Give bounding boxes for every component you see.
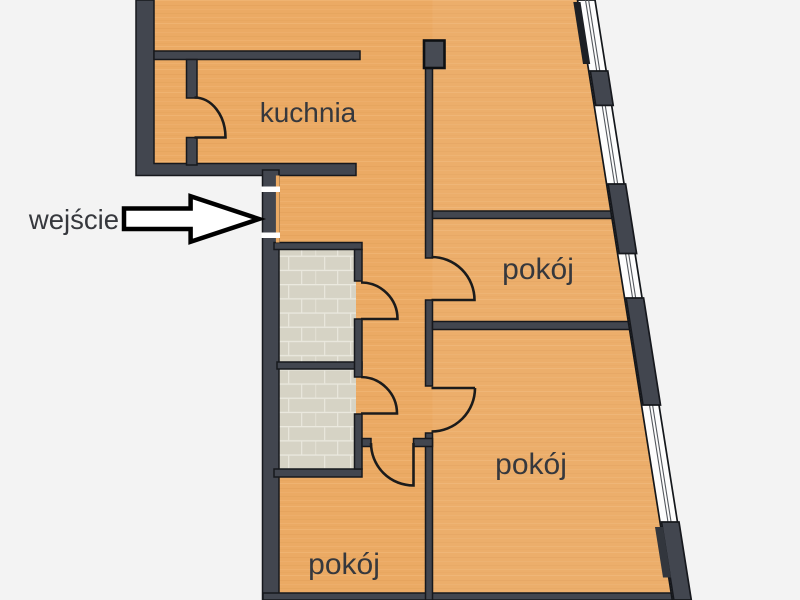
svg-text:wejście: wejście [28,204,119,235]
svg-text:kuchnia: kuchnia [260,97,357,128]
svg-text:pokój: pokój [502,253,574,286]
svg-text:pokój: pokój [308,548,380,581]
svg-text:pokój: pokój [495,448,567,481]
